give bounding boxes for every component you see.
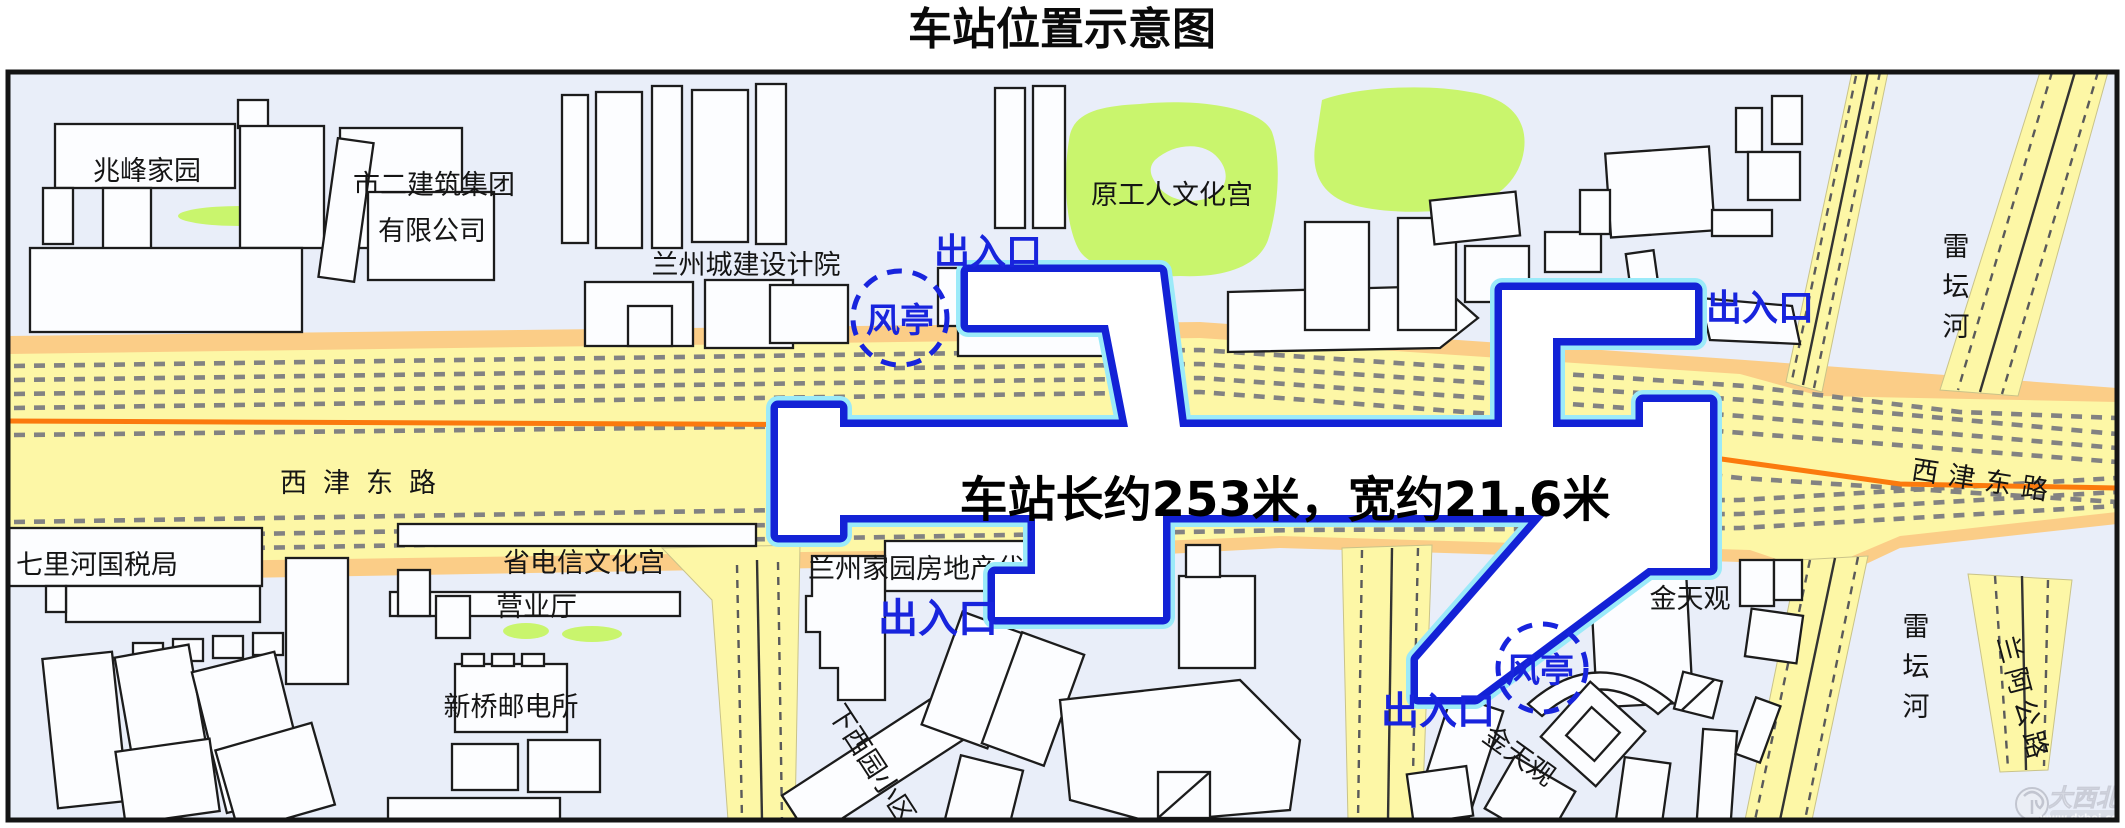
entrance-label-bottom-right: 出入口 <box>1381 689 1495 733</box>
label-leitan-top-2: 坛 <box>1943 272 1970 303</box>
entrance-label-bottom-left: 出入口 <box>878 596 998 642</box>
entrance-label-top-left: 出入口 <box>934 232 1042 273</box>
vent-label-top: 风亭 <box>866 301 934 341</box>
label-xijin-east-left: 西津东路 <box>280 468 452 499</box>
page-title: 车站位置示意图 <box>908 4 1216 55</box>
label-leitan-bottom-2: 坛 <box>1903 652 1930 683</box>
label-zhaofeng: 兆峰家园 <box>93 156 201 187</box>
label-wenhuagong: 原工人文化宫 <box>1091 180 1253 211</box>
label-jintianguan-upper: 金天观 <box>1650 584 1731 615</box>
entrance-label-top-right: 出入口 <box>1706 288 1814 329</box>
label-leitan-top-1: 雷 <box>1943 232 1970 263</box>
label-shier-group-2: 有限公司 <box>378 216 486 247</box>
vent-label-bottom: 风亭 <box>1506 651 1574 691</box>
label-leitan-top-3: 河 <box>1943 312 1970 343</box>
label-dianxin-1: 省电信文化宫 <box>503 548 665 579</box>
label-shier-group-1: 市二建筑集团 <box>353 170 515 201</box>
label-youdiansuo: 新桥邮电所 <box>444 692 579 723</box>
label-guoshuiju: 七里河国税局 <box>16 550 178 581</box>
label-leitan-bottom-3: 河 <box>1903 692 1930 723</box>
watermark-brand: 大西北 <box>2048 784 2123 812</box>
station-size-note: 车站长约253米，宽约21.6米 <box>960 472 1611 528</box>
label-dianxin-2: 营业厅 <box>496 592 577 623</box>
label-leitan-bottom-1: 雷 <box>1903 612 1930 643</box>
station-location-map: { "title": "车站位置示意图", "station": { "size… <box>0 0 2125 828</box>
label-chengjian: 兰州城建设计院 <box>652 250 841 281</box>
